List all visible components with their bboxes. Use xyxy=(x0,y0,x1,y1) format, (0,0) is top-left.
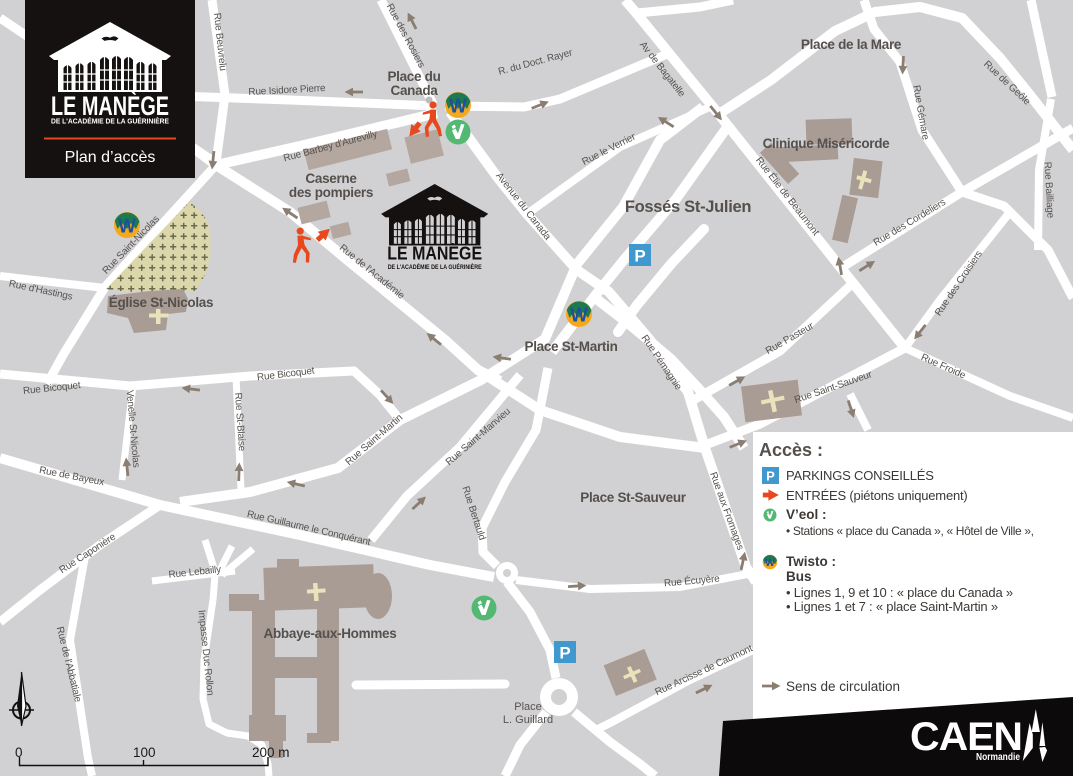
svg-text:Fossés St-Julien: Fossés St-Julien xyxy=(625,198,752,216)
svg-text:Place du: Place du xyxy=(387,69,440,84)
svg-text:Accès :: Accès : xyxy=(759,440,823,460)
svg-text:des pompiers: des pompiers xyxy=(289,185,373,200)
svg-text:• Lignes 1 et 7 : « place Sain: • Lignes 1 et 7 : « place Saint-Martin » xyxy=(786,599,998,614)
svg-text:P: P xyxy=(634,247,645,266)
svg-text:Bus: Bus xyxy=(786,569,812,584)
svg-text:P: P xyxy=(559,644,570,663)
svg-text:Caserne: Caserne xyxy=(305,171,357,186)
svg-text:• Stations « place du Canada »: • Stations « place du Canada », « Hôtel … xyxy=(786,524,1034,538)
svg-text:100: 100 xyxy=(133,745,156,760)
svg-text:Place St-Martin: Place St-Martin xyxy=(524,339,617,354)
svg-text:Place St-Sauveur: Place St-Sauveur xyxy=(580,490,687,505)
svg-text:L. Guillard: L. Guillard xyxy=(503,714,553,726)
svg-text:Canada: Canada xyxy=(391,83,439,98)
svg-text:Place: Place xyxy=(514,701,542,713)
svg-text:Église St-Nicolas: Église St-Nicolas xyxy=(109,295,213,310)
svg-text:Abbaye-aux-Hommes: Abbaye-aux-Hommes xyxy=(264,626,397,641)
svg-text:Clinique Miséricorde: Clinique Miséricorde xyxy=(763,136,891,151)
svg-text:Place de la Mare: Place de la Mare xyxy=(801,37,902,52)
svg-text:200 m: 200 m xyxy=(252,745,290,760)
svg-text:Sens de circulation: Sens de circulation xyxy=(786,679,900,694)
svg-text:PARKINGS CONSEILLÉS: PARKINGS CONSEILLÉS xyxy=(786,468,934,483)
svg-text:Plan d’accès: Plan d’accès xyxy=(65,149,156,166)
svg-text:Normandie: Normandie xyxy=(976,752,1020,763)
svg-text:V’eol :: V’eol : xyxy=(786,507,827,522)
svg-text:ENTRÉES (piétons uniquement): ENTRÉES (piétons uniquement) xyxy=(786,488,968,503)
svg-text:• Lignes 1, 9 et 10 : « place: • Lignes 1, 9 et 10 : « place du Canada … xyxy=(786,585,1013,600)
svg-text:P: P xyxy=(766,469,775,484)
svg-text:Twisto :: Twisto : xyxy=(786,554,836,569)
svg-text:0: 0 xyxy=(15,745,23,760)
svg-text:LE MANÈGE: LE MANÈGE xyxy=(387,243,482,264)
svg-text:DE L'ACADÉMIE DE LA GUÉRINIÈRE: DE L'ACADÉMIE DE LA GUÉRINIÈRE xyxy=(51,117,169,126)
svg-text:DE L'ACADÉMIE DE LA GUÉRINIÈRE: DE L'ACADÉMIE DE LA GUÉRINIÈRE xyxy=(388,262,482,271)
